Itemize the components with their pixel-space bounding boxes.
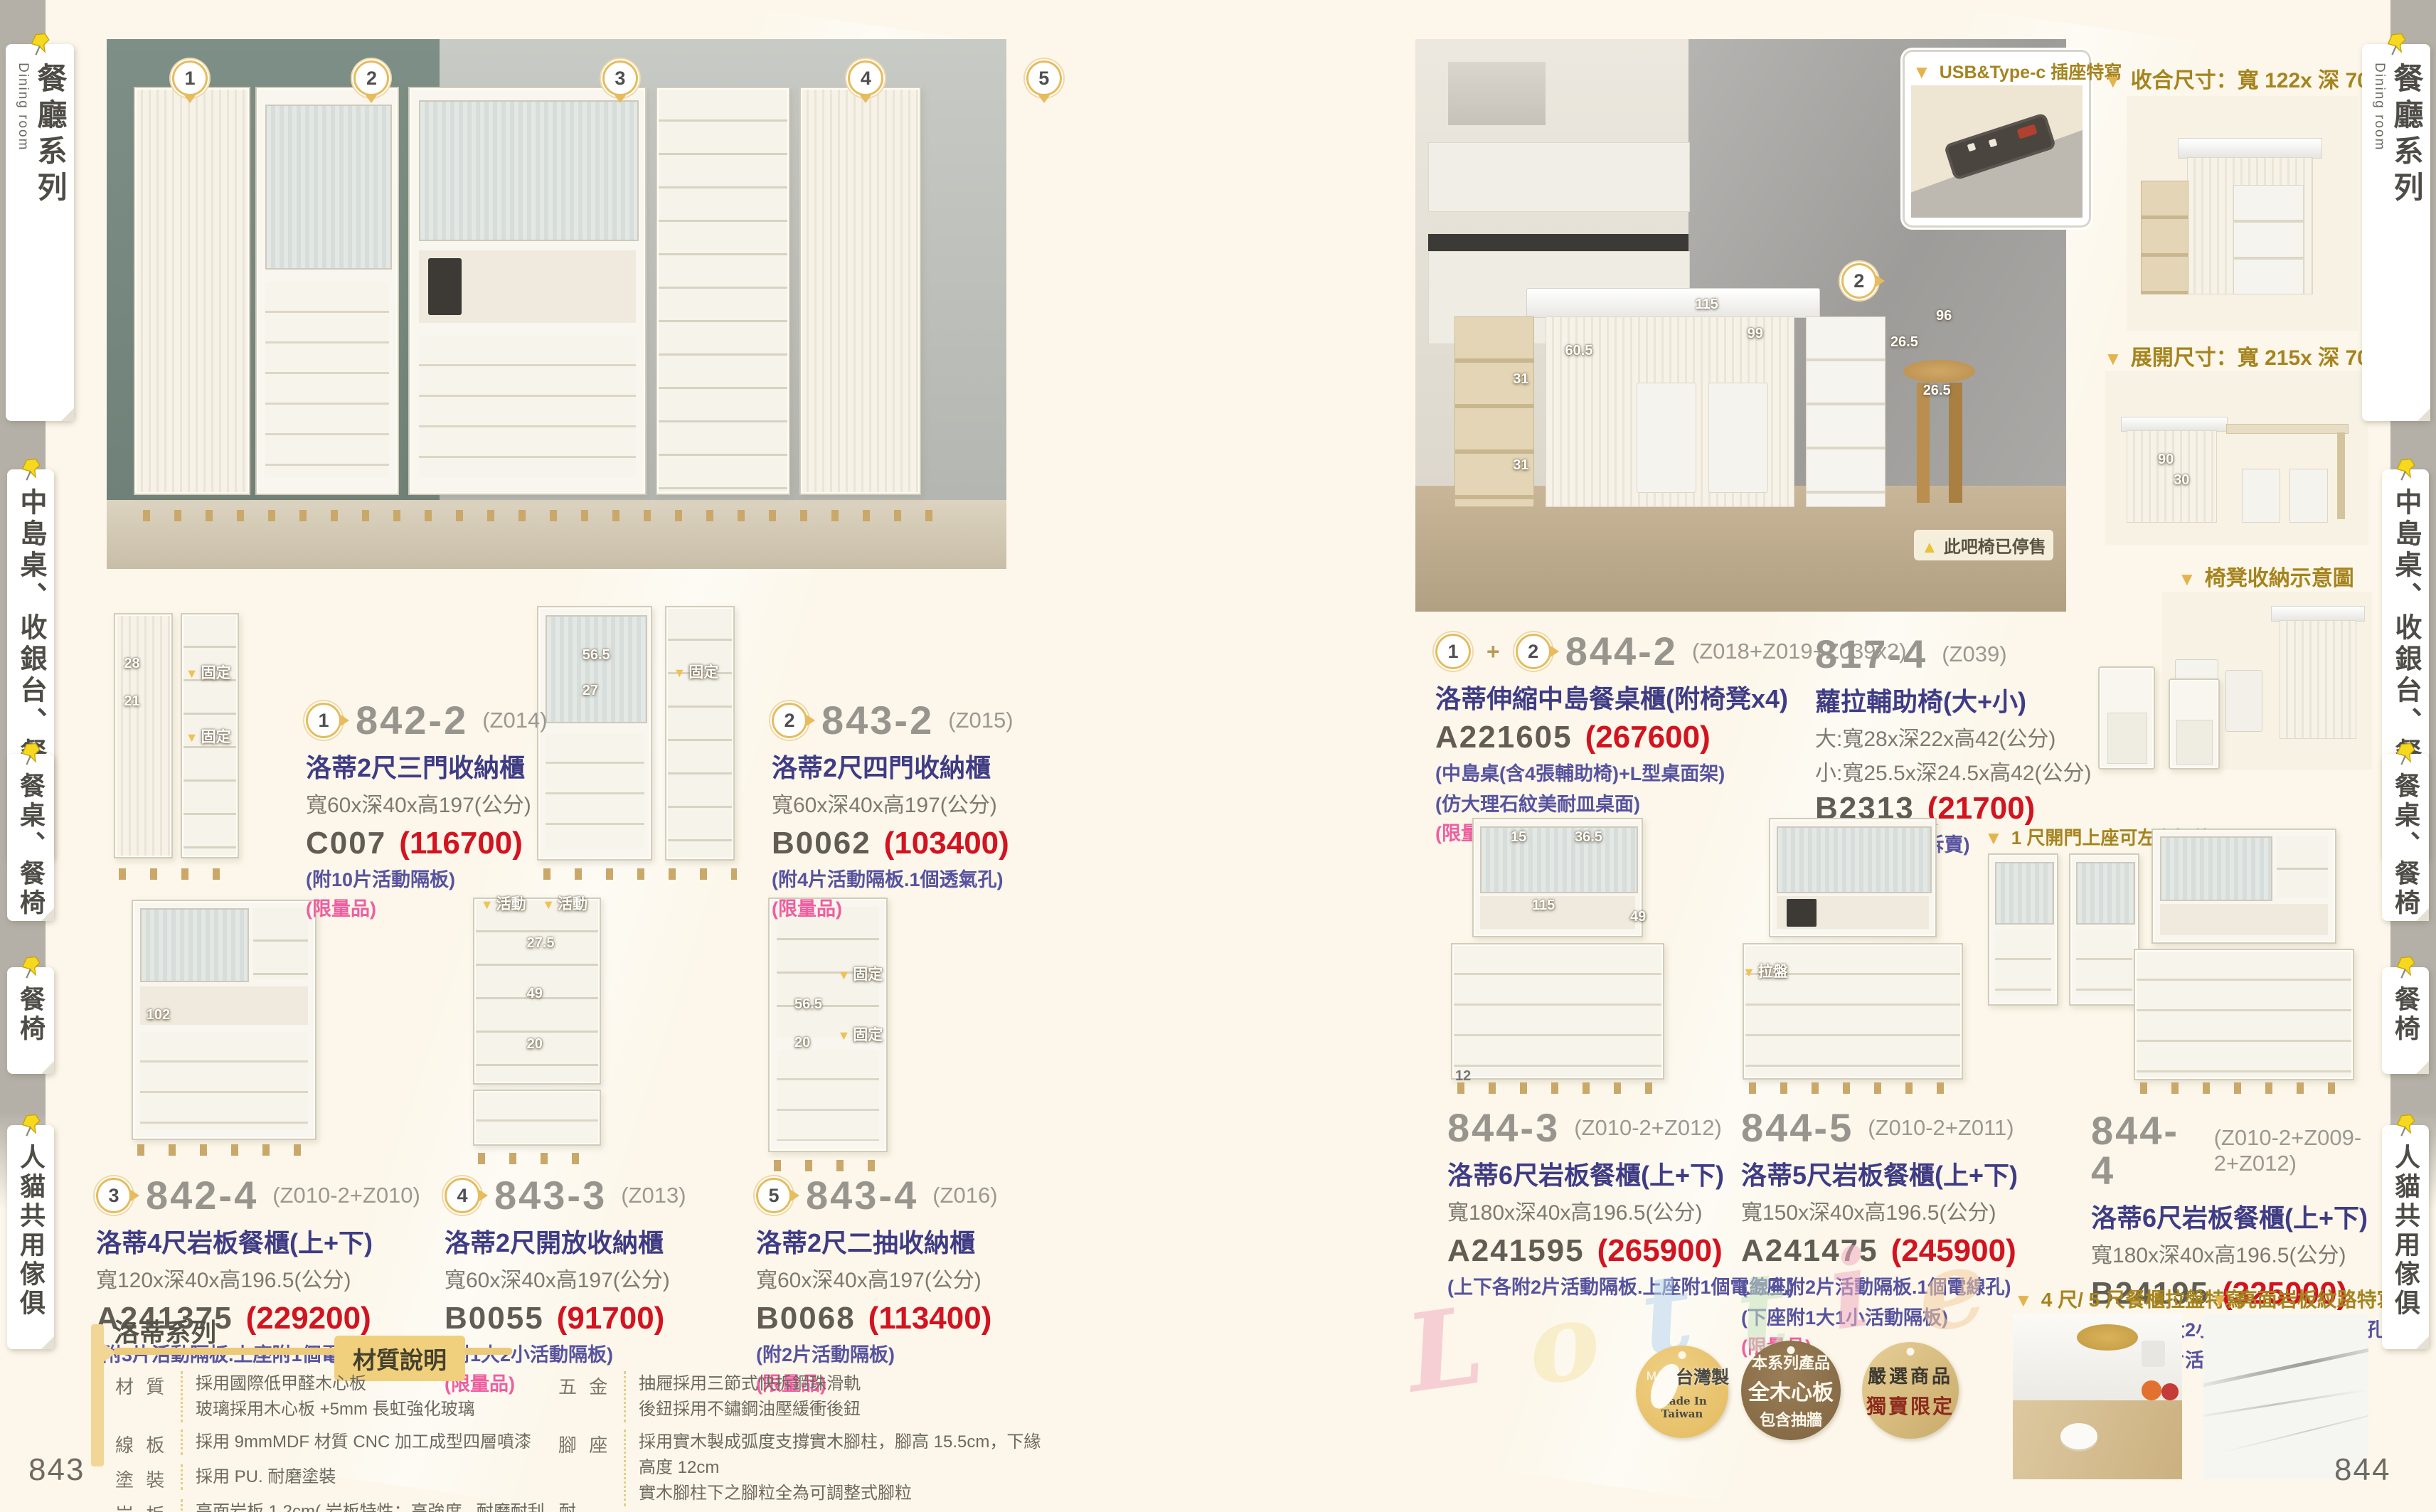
dim-label: 28 — [124, 656, 139, 672]
catalog-spread: 餐廳系列 Dining room 中島桌、收銀台、餐櫃 餐桌、餐椅 餐椅 人貓共… — [0, 0, 2436, 1512]
product-variant: (Z013) — [621, 1183, 686, 1208]
spec-row: 材 質 採用國際低甲醛木心板玻璃採用木心板 +5mm 長虹強化玻璃 — [115, 1371, 578, 1422]
product-price: (113400) — [868, 1301, 992, 1336]
mini-hutch — [1988, 853, 2058, 1006]
spec-lines: 抽屜採用三節式快拆鋼珠滑軌後鈕採用不鏽鋼油壓緩衝後鈕 — [624, 1371, 861, 1422]
product-card-842-2: 1 842-2 (Z014) 洛蒂2尺三門收納櫃 寬60x深40x高197(公分… — [306, 701, 548, 921]
cabinet-legs — [1749, 1082, 1956, 1094]
product-model: B0062 — [772, 826, 871, 861]
figure-swing-door-options — [1988, 853, 2141, 1013]
range-hood — [1448, 62, 1546, 125]
pushpin-icon — [18, 956, 43, 980]
cabinet-legs — [774, 1160, 881, 1171]
product-variant: (Z015) — [948, 708, 1013, 733]
hutch-top — [2152, 829, 2336, 944]
spec-label: 五 金 — [558, 1371, 624, 1399]
spec-line: 抽屜採用三節式快拆鋼珠滑軌 — [639, 1371, 861, 1397]
product-code: 844-2 — [1565, 632, 1678, 671]
dim-label: 36.5 — [1575, 829, 1602, 846]
spec-column-left: 材 質 採用國際低甲醛木心板玻璃採用木心板 +5mm 長虹強化玻璃 線 板 採用… — [115, 1371, 578, 1512]
dim-label: 27.5 — [527, 935, 555, 952]
sidebar-label: 餐桌、餐椅 — [18, 772, 43, 921]
product-code: 842-4 — [146, 1176, 258, 1215]
marble-top — [2178, 138, 2323, 158]
island-body — [2127, 430, 2218, 522]
product-name: 洛蒂2尺二抽收納櫃 — [756, 1223, 998, 1260]
spec-line: 實木腳柱下之腳粒全為可調整式腳粒 — [639, 1481, 1042, 1506]
discontinued-warning: 此吧椅已停售 — [1914, 530, 2053, 560]
sidebar-item-chair: 餐椅 — [7, 967, 54, 1074]
marble-vein — [2203, 1341, 2368, 1390]
dim-label: 26.5 — [1923, 383, 1951, 399]
glass-doors — [2160, 836, 2272, 901]
cabinet-legs — [543, 868, 738, 880]
sidebar-label: 人貓共用傢俱 — [2393, 1144, 2418, 1349]
product-code: 844-4 — [2091, 1111, 2200, 1191]
product-name: 洛蒂2尺三門收納櫃 — [306, 747, 548, 784]
wood-pullout-tray — [2013, 1400, 2182, 1479]
product-card-843-3: 4 843-3 (Z013) 洛蒂2尺開放收納櫃 寬60x深40x高197(公分… — [445, 1176, 686, 1396]
pushpin-icon — [18, 458, 43, 482]
fixed-shelf-chip: 固定 — [837, 963, 883, 984]
product-card-843-2: 2 843-2 (Z015) 洛蒂2尺四門收納櫃 寬60x深40x高197(公分… — [772, 701, 1014, 921]
spec-line: 後鈕採用不鏽鋼油壓緩衝後鈕 — [639, 1397, 861, 1422]
hutch-top — [1472, 818, 1643, 937]
pullout-tray-chip: 拉盤 — [1743, 960, 1788, 981]
glass-doors — [2076, 862, 2136, 925]
product-price: (103400) — [884, 826, 1009, 861]
usb-callout-text: USB&Type-c 插座特寫 — [1940, 63, 2122, 82]
drawers — [265, 282, 390, 477]
product-size-large: 大:寬28x深22x高42(公分) — [1815, 721, 2091, 752]
pushpin-icon — [28, 33, 52, 57]
product-name: 洛蒂5尺岩板餐櫃(上+下) — [1741, 1155, 2018, 1192]
sidebar-item-dining-series: 餐廳系列 Dining room — [6, 44, 74, 421]
dim-label: 60.5 — [1565, 343, 1592, 359]
counter-top — [1428, 234, 1688, 252]
nesting-stool — [1637, 383, 1696, 493]
product-model: A241595 — [1447, 1233, 1585, 1269]
product-name: 蘿拉輔助椅(大+小) — [1815, 681, 2091, 718]
product-model: B0068 — [756, 1301, 856, 1336]
dim-label: 49 — [527, 986, 543, 1002]
dim-label: 96 — [1936, 308, 1952, 324]
glass-doors — [546, 615, 647, 724]
marble-top — [2271, 606, 2365, 622]
sidebar-item-human-cat-furniture-right: 人貓共用傢俱 — [2382, 1125, 2429, 1349]
cabinet-legs — [137, 1144, 311, 1156]
mini-hutch — [2069, 853, 2139, 1006]
sidebar-label: 餐廳系列 — [2391, 63, 2421, 421]
pushpin-icon — [2393, 458, 2418, 482]
fixed-shelf-chip: 固定 — [186, 661, 231, 683]
side-shelf — [2141, 181, 2188, 294]
island-marble-top — [1526, 288, 1821, 318]
sidebar-label: 人貓共用傢俱 — [18, 1144, 43, 1349]
product-variant: (Z016) — [932, 1183, 997, 1208]
product-model: B0055 — [445, 1301, 544, 1336]
page-number-left: 843 — [28, 1452, 85, 1488]
dim-label: 115 — [1695, 297, 1718, 313]
coffee-machine — [1787, 899, 1817, 927]
spec-lines: 採用實木製成弧度支撐實木腳柱，腳高 15.5cm，下緣高度 12cm實木腳柱下之… — [624, 1430, 1042, 1506]
wood-core-badge: 本系列產品 全木心板 包含抽牆 — [1741, 1341, 1841, 1440]
hero-marker-5: 5 — [1026, 60, 1062, 96]
spec-label: 線 板 — [115, 1430, 181, 1457]
pushpin-icon — [2393, 742, 2418, 767]
cabinet-open — [665, 606, 735, 861]
marble-vein — [2203, 1383, 2368, 1419]
extension-table-top — [2226, 424, 2349, 434]
kitchen-marker-2: 2 — [1841, 263, 1877, 299]
photo-island-extended: 90 30 — [2105, 371, 2368, 545]
dim-label: 102 — [147, 1007, 170, 1023]
coffee-cup — [2060, 1423, 2097, 1449]
sidebar-label: 餐椅 — [18, 986, 43, 1074]
figure-843-4: 56.5 固定 20 固定 — [768, 898, 888, 1171]
gold-plate — [2077, 1324, 2138, 1351]
product-size: 寬60x深40x高197(公分) — [772, 787, 1014, 819]
drawers — [546, 733, 644, 849]
item-number-badge: 1 — [1435, 634, 1471, 669]
product-note: (附10片活動隔板) — [306, 864, 548, 892]
usb-socket-inset: USB&Type-c 插座特寫 — [1903, 50, 2091, 228]
dim-label: 31 — [1513, 457, 1528, 474]
pushpin-icon — [2384, 33, 2408, 57]
glass-doors — [1995, 862, 2055, 925]
stool-small — [2169, 678, 2220, 770]
spec-row: 五 金 抽屜採用三節式快拆鋼珠滑軌後鈕採用不鏽鋼油壓緩衝後鈕 — [558, 1371, 1042, 1422]
made-in-taiwan-badge: MIT 台灣製 Made In Taiwan — [1636, 1346, 1728, 1438]
product-code: 844-3 — [1447, 1108, 1560, 1148]
badge-hole — [1787, 1346, 1795, 1354]
product-code: 843-4 — [806, 1176, 918, 1215]
figure-844-4 — [2134, 829, 2354, 1102]
table-leg — [2337, 432, 2345, 520]
product-note: (附4片活動隔板.1個透氣孔) — [772, 864, 1014, 892]
spec-line: 採用 9mmMDF 材質 CNC 加工成型四層噴漆 — [196, 1430, 531, 1455]
island-end-shelf — [1806, 316, 1885, 507]
fixed-shelf-chip: 固定 — [837, 1023, 883, 1045]
marble-top — [2121, 417, 2228, 432]
spec-column-right: 五 金 抽屜採用三節式快拆鋼珠滑軌後鈕採用不鏽鋼油壓緩衝後鈕 腳 座 採用實木製… — [558, 1371, 1042, 1512]
watermark-letter: o — [1520, 1276, 1612, 1410]
badge-text: 全木心板 — [1748, 1375, 1834, 1406]
glass-doors — [140, 908, 248, 982]
dim-label: 56.5 — [794, 996, 822, 1013]
plus-sign: + — [1486, 639, 1500, 665]
spec-label: 岩 板 — [115, 1499, 181, 1512]
sidebar-label: 餐廳系列 — [35, 63, 65, 421]
spec-line: 採用 PU. 耐磨塗裝 — [196, 1464, 336, 1490]
spec-row: 腳 座 採用實木製成弧度支撐實木腳柱，腳高 15.5cm，下緣高度 12cm實木… — [558, 1430, 1042, 1506]
cabinet — [114, 613, 173, 858]
product-code: 817-4 — [1815, 634, 1927, 674]
pushpin-icon — [2393, 956, 2418, 980]
spec-line: 採用實木製成弧度支撐實木腳柱，腳高 15.5cm，下緣高度 12cm — [639, 1430, 1042, 1481]
figure-844-3: 15 36.5 115 49 12 — [1451, 818, 1664, 1102]
dim-label: 31 — [1513, 371, 1528, 388]
slate-detail-label: 亮面岩板紋路特寫 — [2211, 1284, 2397, 1313]
page-number-right: 844 — [2334, 1452, 2390, 1488]
series-title: 洛蒂系列 — [114, 1312, 216, 1349]
glass-doors — [1777, 826, 1931, 893]
sidebar-label: 餐桌、餐椅 — [2393, 772, 2418, 921]
cabinet-unit-4-open — [656, 87, 791, 495]
product-name: 洛蒂2尺四門收納櫃 — [772, 747, 1014, 784]
dim-label: 115 — [1532, 898, 1555, 914]
spec-row: 塗 裝 採用 PU. 耐磨塗裝 — [115, 1464, 578, 1492]
spec-row: 線 板 採用 9mmMDF 材質 CNC 加工成型四層噴漆 — [115, 1430, 578, 1457]
spec-gold-bar — [91, 1324, 104, 1466]
lower-drawers — [140, 1032, 308, 1129]
stool-opening — [2176, 720, 2213, 765]
pushpin-icon — [18, 1114, 43, 1138]
product-size-small: 小:寬25.5x深24.5x高42(公分) — [1815, 755, 2091, 787]
spec-lines: 採用 PU. 耐磨塗裝 — [181, 1464, 336, 1490]
orange-fruit — [2142, 1380, 2162, 1400]
product-card-843-4: 5 843-4 (Z016) 洛蒂2尺二抽收納櫃 寬60x深40x高197(公分… — [756, 1176, 998, 1396]
counter-niche — [2160, 904, 2328, 935]
sidebar-item-human-cat-furniture: 人貓共用傢俱 — [7, 1125, 54, 1349]
cabinet-legs — [2140, 1082, 2347, 1094]
stool-storage-label: 椅凳收納示意圖 — [2178, 560, 2354, 592]
cabinet-unit-3-hutch — [408, 87, 647, 495]
cabinet-legs — [1457, 1082, 1658, 1094]
fixed-shelf-chip: 固定 — [186, 725, 231, 747]
item-number-badge: 5 — [756, 1178, 792, 1213]
limited-edition-note: (限量品) — [772, 893, 1014, 921]
sidebar-item-chair-right: 餐椅 — [2382, 967, 2429, 1074]
red-fruit — [2161, 1383, 2179, 1400]
spec-lines: 採用 9mmMDF 材質 CNC 加工成型四層噴漆 — [181, 1430, 531, 1455]
glass-doors — [1480, 826, 1637, 893]
product-size: 寬120x深40x高196.5(公分) — [96, 1262, 420, 1294]
cabinet-unit-2 — [255, 87, 399, 495]
item-number-badge: 4 — [445, 1178, 480, 1213]
glass-doors — [265, 105, 393, 270]
badge-hole — [1679, 1351, 1686, 1359]
dim-label: 56.5 — [583, 647, 610, 664]
badge-text: Made In Taiwan — [1636, 1395, 1728, 1420]
side-spice-shelf — [1454, 316, 1534, 507]
product-price: (116700) — [399, 826, 523, 861]
base-cabinet — [1451, 943, 1664, 1080]
dim-label: 30 — [2174, 472, 2189, 489]
figure-843-2: 56.5 27 固定 — [537, 606, 743, 880]
lower-doors — [419, 336, 636, 477]
cabinet-unit-1 — [134, 87, 250, 495]
stool-leg — [1949, 383, 1962, 503]
two-drawers — [777, 1050, 879, 1140]
product-variant: (Z014) — [482, 708, 547, 733]
fixed-shelf-chip: 固定 — [673, 661, 718, 682]
product-price: (267600) — [1585, 720, 1711, 755]
open-shelves — [253, 908, 308, 979]
dim-label: 26.5 — [1890, 334, 1918, 351]
product-price: (229200) — [246, 1301, 371, 1336]
hutch-top — [1769, 818, 1937, 937]
figure-843-3: 活動 活動 27.5 49 20 — [473, 898, 601, 1164]
cabinet-legs — [478, 1153, 596, 1164]
watermark-letter: i — [1821, 1225, 1883, 1355]
dim-label: 21 — [124, 693, 139, 710]
figure-844-5: 拉盤 — [1743, 818, 1963, 1102]
marble-vein — [2223, 1408, 2368, 1454]
item-number-badge: 2 — [1516, 634, 1551, 669]
badge-text: MIT — [1647, 1369, 1671, 1383]
dim-label: 12 — [1455, 1068, 1471, 1085]
exclusive-product-badge: 嚴選商品 獨賣限定 — [1862, 1342, 1959, 1439]
stool-leg — [1917, 383, 1930, 503]
figure-842-2: 28 21 固定 固定 — [114, 613, 242, 880]
drawers — [1995, 930, 2052, 996]
sidebar-label: 餐椅 — [2393, 986, 2418, 1074]
hero-marker-1: 1 — [172, 60, 208, 96]
spec-label: 腳 座 — [558, 1430, 624, 1457]
product-size: 寬60x深40x高197(公分) — [445, 1262, 686, 1294]
sidebar-sublabel: Dining room — [2371, 63, 2387, 421]
nesting-stool — [1708, 383, 1768, 493]
dim-label: 27 — [583, 683, 598, 699]
stool-opening — [2107, 713, 2148, 764]
spec-row: 岩 板 亮面岩板 1.2cm( 岩板特性：高強度 . 耐磨耐刮 . 耐高溫 . … — [115, 1499, 578, 1512]
dim-label: 20 — [794, 1035, 810, 1051]
cabinet-legs — [119, 868, 237, 880]
product-variant: (Z039) — [1942, 641, 2006, 667]
pushpin-icon — [2393, 1114, 2418, 1138]
product-price: (91700) — [557, 1301, 665, 1336]
item-number-badge: 2 — [772, 703, 807, 738]
sidebar-item-dining-series-right: 餐廳系列 Dining room — [2362, 44, 2430, 421]
figure-842-4: 102 — [132, 900, 317, 1156]
stool — [2242, 469, 2280, 523]
badge-text: 嚴選商品 — [1868, 1362, 1953, 1388]
base-cabinet — [2134, 949, 2354, 1080]
product-code: 844-5 — [1741, 1108, 1853, 1148]
stool-large — [2098, 666, 2155, 770]
product-size: 寬60x深40x高197(公分) — [756, 1262, 998, 1294]
spec-line: 玻璃採用木心板 +5mm 長虹強化玻璃 — [196, 1397, 475, 1422]
upper-cabinets — [1428, 142, 1690, 213]
badge-text: 獨賣限定 — [1866, 1391, 1954, 1420]
pushpin-icon — [18, 742, 43, 767]
product-code: 843-3 — [494, 1176, 607, 1215]
counter-niche — [1480, 896, 1634, 929]
limited-edition-note: (限量品) — [306, 893, 548, 921]
slate-detail-text: 亮面岩板紋路特寫 — [2238, 1289, 2397, 1311]
badge-text: 包含抽牆 — [1760, 1407, 1822, 1430]
product-variant: (Z010-2+Z012) — [1574, 1115, 1722, 1141]
usb-callout-label: USB&Type-c 插座特寫 — [1913, 58, 2083, 84]
coffee-machine — [428, 258, 461, 315]
stool-storage-text: 椅凳收納示意圖 — [2205, 567, 2354, 590]
product-model: C007 — [306, 826, 386, 861]
front-shelf — [2233, 185, 2304, 294]
sidebar-sublabel: Dining room — [15, 63, 31, 421]
cabinet-legs — [143, 510, 953, 521]
drawers — [473, 1090, 601, 1146]
dim-label: 49 — [1630, 909, 1646, 925]
warning-text: 此吧椅已停售 — [1944, 538, 2046, 557]
movable-shelf-chip: 活動 — [542, 893, 587, 914]
stool — [2289, 469, 2328, 523]
product-code: 842-2 — [356, 701, 468, 740]
island-body — [2280, 620, 2356, 739]
dim-label: 99 — [1748, 326, 1763, 342]
item-number-badge: 1 — [306, 703, 341, 738]
spec-lines: 採用國際低甲醛木心板玻璃採用木心板 +5mm 長虹強化玻璃 — [181, 1371, 475, 1422]
spec-label: 材 質 — [115, 1371, 181, 1399]
cabinet — [537, 606, 652, 861]
hero-photo-dining-cabinet-wall — [107, 39, 1006, 569]
socket-photo — [1911, 85, 2083, 218]
figure-817-4-stools — [2098, 654, 2233, 775]
bottle — [2142, 1341, 2165, 1367]
product-name: 洛蒂2尺開放收納櫃 — [445, 1223, 686, 1260]
wooden-bar-stool-seat — [1903, 360, 1975, 383]
dim-label: 90 — [2158, 452, 2174, 468]
dim-label: 15 — [1511, 829, 1526, 846]
item-number-badge: 3 — [96, 1178, 132, 1213]
spec-label: 塗 裝 — [115, 1464, 181, 1492]
sidebar-item-table-chair-right: 餐桌、餐椅 — [2382, 754, 2429, 921]
product-variant: (Z010-2+Z011) — [1868, 1115, 2014, 1141]
product-size: 寬60x深40x高197(公分) — [306, 787, 548, 819]
product-model: A221605 — [1435, 720, 1573, 755]
dim-label: 20 — [527, 1036, 543, 1053]
sidebar-item-table-chair: 餐桌、餐椅 — [7, 754, 54, 921]
photo-island-folded — [2127, 96, 2358, 331]
product-code: 843-2 — [821, 701, 934, 740]
badge-hole — [1907, 1348, 1915, 1356]
drawers — [2076, 930, 2133, 996]
watermark-letter: L — [1399, 1282, 1495, 1417]
spec-line: 亮面岩板 1.2cm( 岩板特性：高強度 . 耐磨耐刮 . 耐高溫 . 易清潔 … — [196, 1499, 578, 1512]
product-variant: (Z010-2+Z010) — [272, 1183, 420, 1208]
hero-marker-3: 3 — [602, 60, 638, 96]
badge-text: 台灣製 — [1676, 1363, 1729, 1389]
glass-doors — [419, 100, 639, 241]
power-strip — [1944, 112, 2057, 181]
photo-pullout-tray-detail — [2013, 1314, 2182, 1479]
product-name: 洛蒂4尺岩板餐櫃(上+下) — [96, 1223, 420, 1260]
cabinet-unit-5 — [799, 87, 921, 495]
spec-line: 採用國際低甲醛木心板 — [196, 1371, 475, 1397]
product-note: (附2片活動隔板) — [756, 1339, 998, 1367]
open-shelves — [2277, 836, 2328, 898]
spec-lines: 亮面岩板 1.2cm( 岩板特性：高強度 . 耐磨耐刮 . 耐高溫 . 易清潔 … — [181, 1499, 578, 1512]
